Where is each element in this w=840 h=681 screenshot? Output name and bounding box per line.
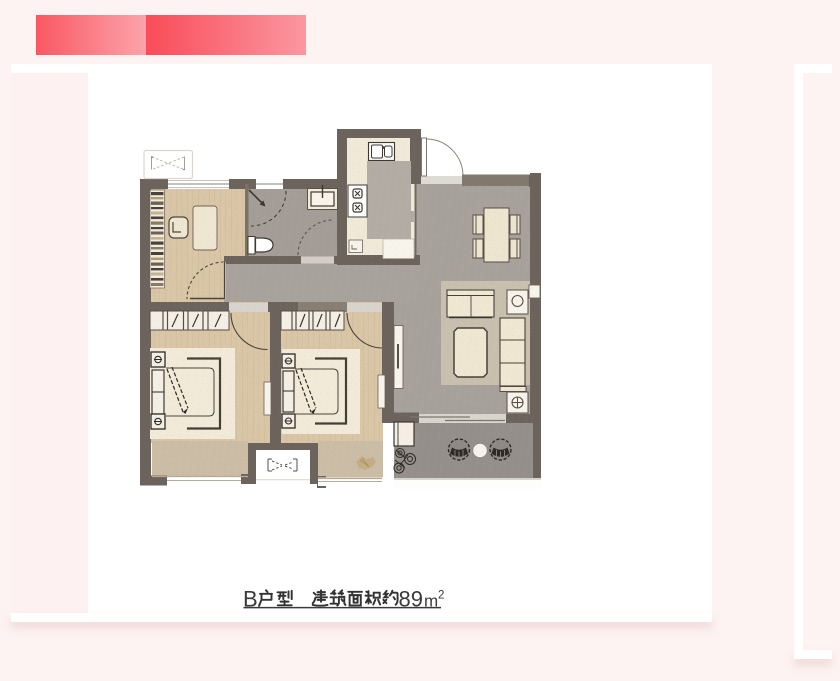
svg-text:2: 2 (438, 590, 444, 602)
